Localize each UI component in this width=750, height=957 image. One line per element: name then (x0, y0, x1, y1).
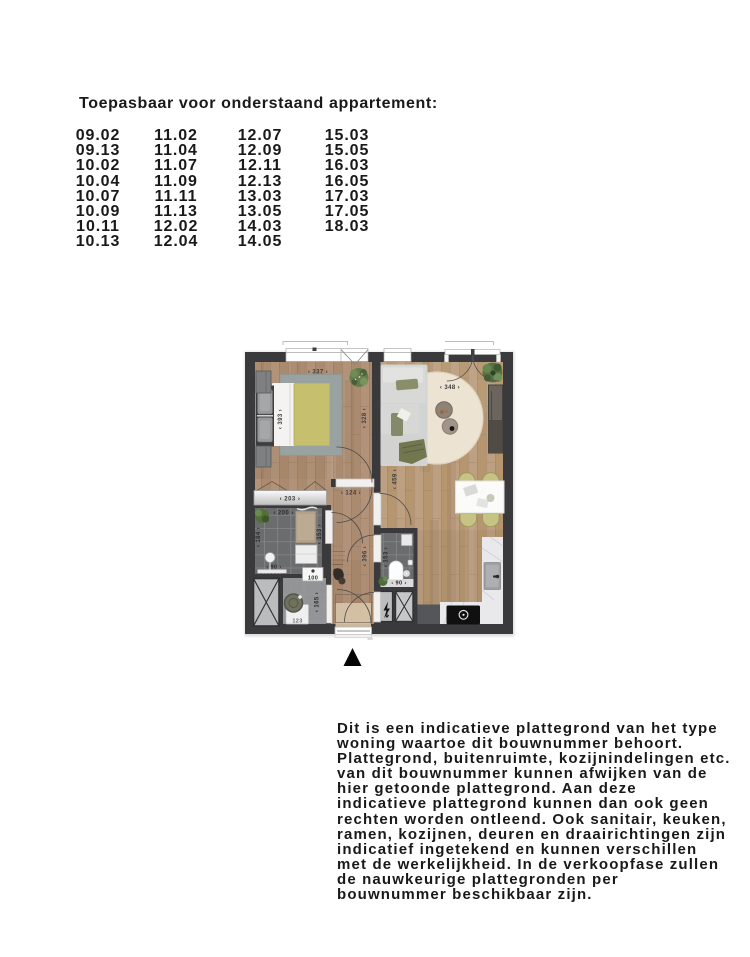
svg-text:‹ 337 ›: ‹ 337 › (308, 370, 328, 376)
svg-text:‹ 200 ›: ‹ 200 › (273, 511, 293, 517)
svg-text:‹ 348 ›: ‹ 348 › (440, 385, 460, 391)
svg-text:‹ 124 ›: ‹ 124 › (341, 491, 361, 497)
svg-text:‹ 90 ›: ‹ 90 › (266, 565, 281, 571)
svg-text:123: 123 (292, 619, 302, 625)
svg-text:‹ 165 ›: ‹ 165 › (315, 592, 321, 612)
svg-text:‹ 328 ›: ‹ 328 › (362, 408, 368, 428)
svg-text:‹ 153 ›: ‹ 153 › (317, 524, 323, 544)
svg-text:‹ 153 ›: ‹ 153 › (384, 547, 390, 567)
svg-text:‹ 90 ›: ‹ 90 › (391, 581, 406, 587)
svg-text:100: 100 (308, 576, 318, 582)
svg-text:‹ 203 ›: ‹ 203 › (280, 497, 301, 503)
svg-text:‹ 184 ›: ‹ 184 › (256, 527, 262, 547)
svg-text:‹ 459 ›: ‹ 459 › (393, 469, 399, 489)
svg-text:‹ 396 ›: ‹ 396 › (363, 546, 369, 566)
svg-text:‹ 393 ›: ‹ 393 › (278, 409, 284, 429)
